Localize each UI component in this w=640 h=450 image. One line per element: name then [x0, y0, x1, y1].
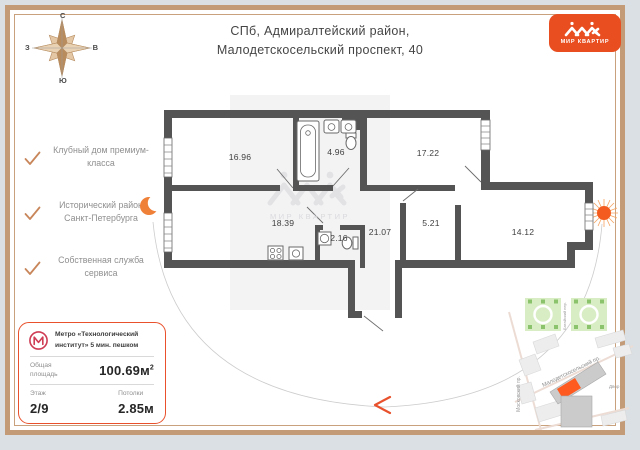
page-title: СПб, Адмиралтейский район, Малодетскосел…	[0, 22, 640, 61]
total-area-label: Общая площадь	[30, 361, 58, 379]
logo-label: МИР КВАРТИР	[561, 39, 610, 45]
yard-label: Двор	[609, 384, 620, 389]
floor-info: Этаж 2/9	[30, 389, 49, 415]
apartment-info-card: Метро «Технологический институт» 5 мин. …	[18, 322, 166, 424]
feature-list: Клубный дом премиум-класса Исторический …	[22, 143, 154, 308]
sink-icon	[341, 120, 356, 133]
divider	[30, 384, 154, 385]
metro-line-2: институт» 5 мин. пешком	[55, 341, 138, 351]
kitchen-sink-icon	[289, 247, 303, 260]
mir-kvartir-logo: МИР КВАРТИР	[549, 14, 621, 52]
toilet-icon	[353, 237, 358, 249]
compass-south-label: Ю	[59, 76, 67, 85]
room-area-label: 14.12	[512, 227, 535, 237]
location-map: Батайский пер. Московский пр. Малодетско…	[505, 290, 635, 430]
feature-item-club-house: Клубный дом премиум-класса	[22, 143, 154, 171]
ceiling-info: Потолки 2.85м	[118, 389, 154, 415]
sink-icon	[324, 120, 339, 133]
feature-item-historic-district: Исторический район Санкт-Петербурга	[22, 198, 154, 226]
feature-label: Исторический район Санкт-Петербурга	[48, 199, 154, 225]
address-line-2: Малодетскосельский проспект, 40	[0, 41, 640, 60]
room-area-label: 18.39	[272, 218, 295, 228]
map-park	[571, 298, 607, 331]
flyer-page: С В Ю З СПб, Адмиралтейский район, Малод…	[0, 0, 640, 450]
map-drawing: Батайский пер. Московский пр. Малодетско…	[505, 290, 635, 430]
map-park	[525, 298, 561, 331]
check-icon	[24, 151, 41, 166]
total-area-value: 100.69м2	[99, 363, 154, 378]
compass-north-label: С	[60, 11, 65, 20]
feature-label: Собственная служба сервиса	[48, 254, 154, 280]
check-icon	[24, 206, 41, 221]
ceiling-value: 2.85м	[118, 401, 154, 416]
feature-item-service: Собственная служба сервиса	[22, 253, 154, 281]
address-line-1: СПб, Адмиралтейский район,	[0, 22, 640, 41]
street-label-vertical: Московский пр.	[515, 376, 522, 412]
roofs-logo-icon	[564, 21, 606, 37]
feature-label: Клубный дом премиум-класса	[48, 144, 154, 170]
divider	[30, 356, 154, 357]
metro-line-1: Метро «Технологический	[55, 330, 138, 340]
room-area-label: 16.96	[229, 152, 252, 162]
metro-icon	[28, 330, 49, 351]
room-area-label: 4.96	[327, 147, 345, 157]
room-area-label: 17.22	[417, 148, 440, 158]
floor-value: 2/9	[30, 401, 49, 416]
ceiling-label: Потолки	[118, 389, 154, 398]
room-area-label: 21.07	[369, 227, 392, 237]
street-label-between-parks: Батайский пер.	[562, 302, 567, 330]
room-area-label: 2.16	[330, 233, 348, 243]
floor-label: Этаж	[30, 389, 49, 398]
check-icon	[24, 261, 41, 276]
room-area-label: 5.21	[422, 218, 440, 228]
